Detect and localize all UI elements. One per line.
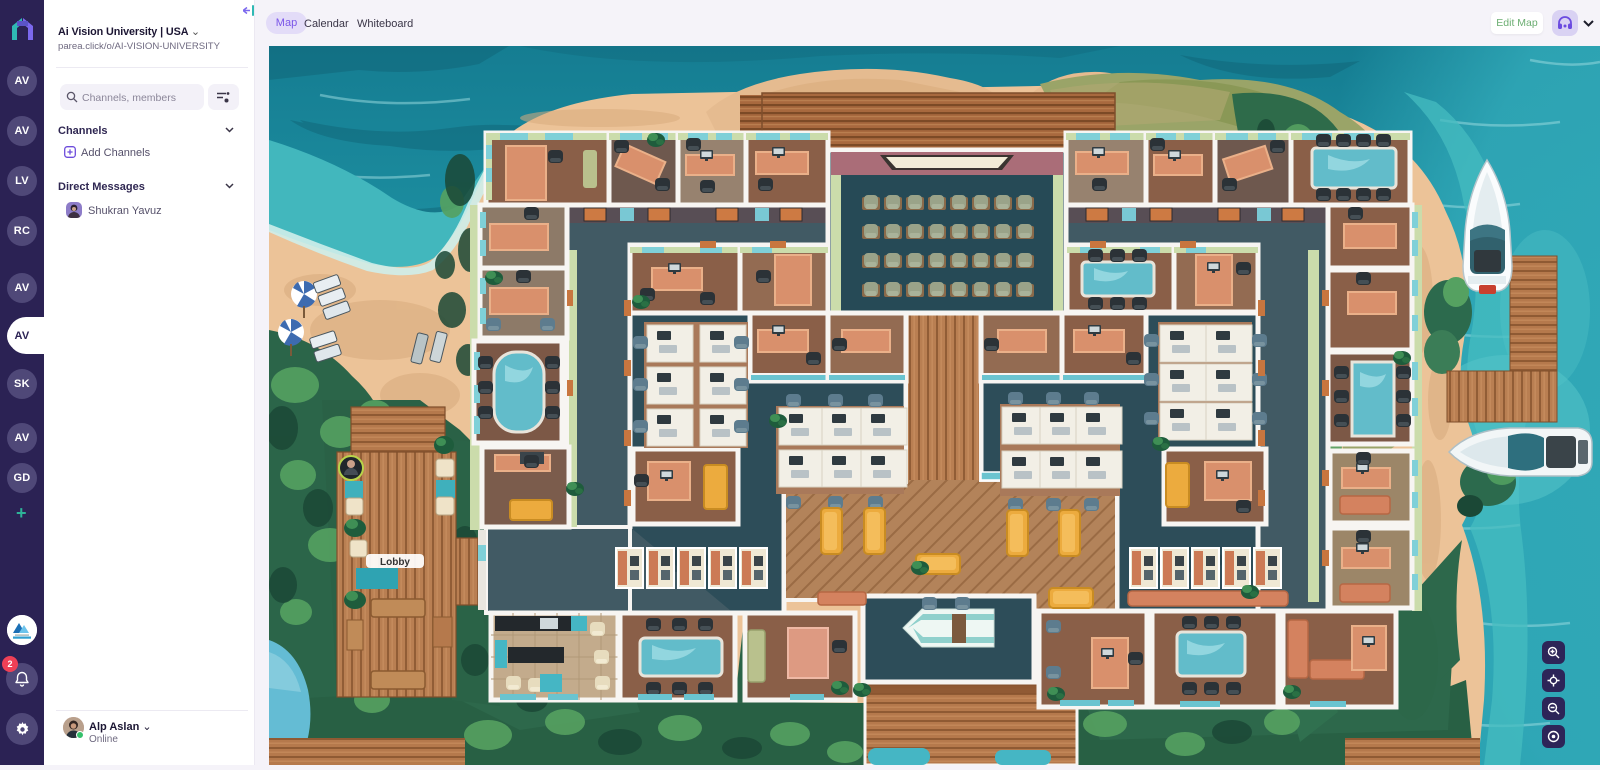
svg-text:Lobby: Lobby [380,557,410,568]
